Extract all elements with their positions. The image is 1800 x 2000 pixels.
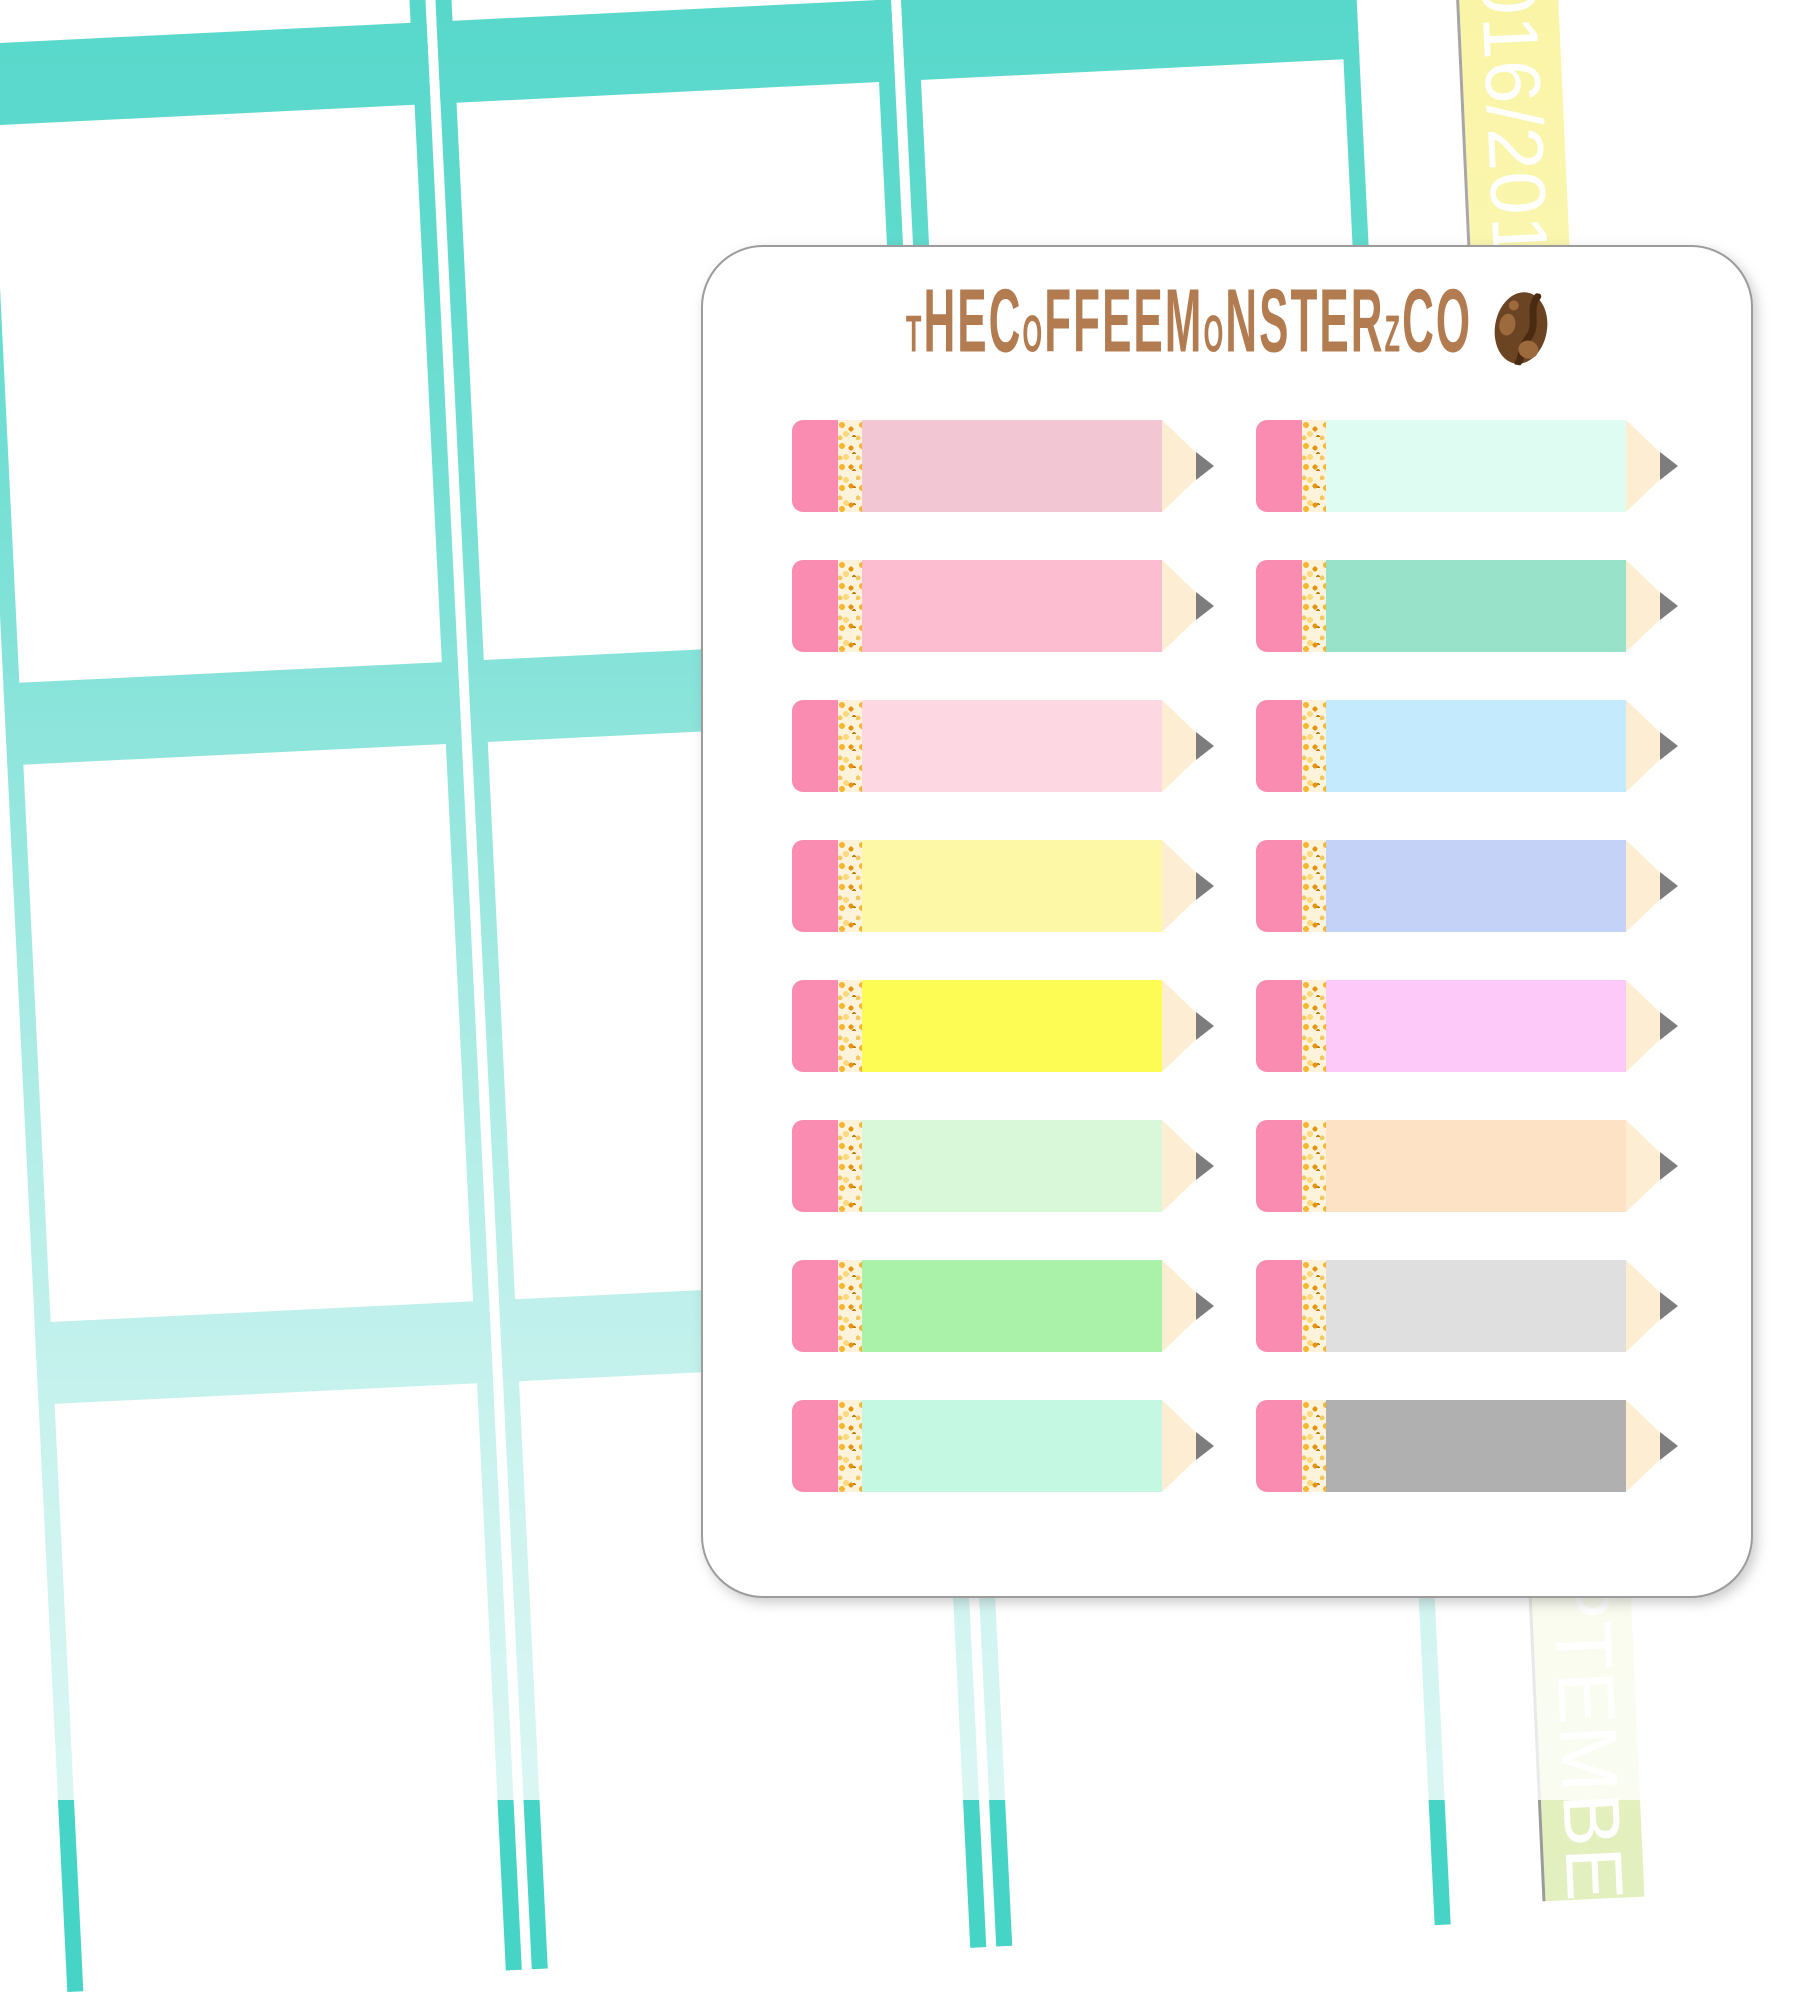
pencil-body: [862, 1120, 1162, 1212]
orchid-pencil: [1256, 980, 1686, 1072]
pencil-glitter-ferrule: [1302, 560, 1326, 652]
pencil-glitter-ferrule: [838, 560, 862, 652]
planner-week-header-band: [437, 0, 895, 103]
pencil-body: [1326, 1120, 1626, 1212]
periwinkle-pencil: [1256, 840, 1686, 932]
pencil-eraser: [1256, 700, 1302, 792]
pencil-glitter-ferrule: [838, 980, 862, 1072]
pencil-graphite-point: [1660, 592, 1678, 620]
light-gray-pencil: [1256, 1260, 1686, 1352]
pencil-graphite-point: [1196, 872, 1214, 900]
pencil-graphite-point: [1196, 452, 1214, 480]
pencil-eraser: [1256, 420, 1302, 512]
pencil-graphite-point: [1196, 1292, 1214, 1320]
brand-logo: THECOFFEEMONSTERZCO: [703, 291, 1751, 365]
planner-week-header-band: [901, 0, 1359, 81]
light-pink-pencil: [792, 700, 1222, 792]
light-green-pencil: [792, 1260, 1222, 1352]
planner-column: [0, 0, 522, 1992]
pencil-body: [862, 420, 1162, 512]
pencil-glitter-ferrule: [1302, 420, 1326, 512]
pencil-graphite-point: [1660, 1152, 1678, 1180]
pencil-glitter-ferrule: [1302, 700, 1326, 792]
pencil-eraser: [792, 700, 838, 792]
pencil-glitter-ferrule: [838, 840, 862, 932]
pale-green-pencil: [792, 1120, 1222, 1212]
pencil-glitter-ferrule: [838, 700, 862, 792]
pencil-graphite-point: [1660, 1292, 1678, 1320]
planner-week-header-band: [35, 1301, 493, 1405]
pencil-eraser: [792, 1400, 838, 1492]
pencil-glitter-ferrule: [1302, 1400, 1326, 1492]
pencil-body: [862, 1400, 1162, 1492]
pencil-graphite-point: [1660, 732, 1678, 760]
yellow-pencil: [792, 980, 1222, 1072]
pencil-body: [1326, 840, 1626, 932]
pencil-eraser: [792, 1120, 838, 1212]
sticker-shop-product-image: { "brand": { "name": "tHECoFFEEMoNSTERzC…: [0, 0, 1800, 1800]
pencil-glitter-ferrule: [1302, 1260, 1326, 1352]
pencil-graphite-point: [1196, 1012, 1214, 1040]
pencil-glitter-ferrule: [838, 1400, 862, 1492]
pencil-body: [1326, 1260, 1626, 1352]
pencil-body: [862, 840, 1162, 932]
pencil-body: [1326, 980, 1626, 1072]
pencil-eraser: [1256, 560, 1302, 652]
seafoam-pencil: [1256, 560, 1686, 652]
pencil-glitter-ferrule: [1302, 840, 1326, 932]
pencil-glitter-ferrule: [838, 1260, 862, 1352]
planner-week-header-band: [0, 22, 431, 126]
pencil-body: [1326, 420, 1626, 512]
pencil-eraser: [1256, 1400, 1302, 1492]
pencil-graphite-point: [1660, 872, 1678, 900]
pencil-graphite-point: [1660, 1012, 1678, 1040]
pencil-graphite-point: [1196, 592, 1214, 620]
pencil-eraser: [1256, 980, 1302, 1072]
pencil-glitter-ferrule: [1302, 1120, 1326, 1212]
pale-yellow-pencil: [792, 840, 1222, 932]
pencil-eraser: [792, 560, 838, 652]
pencil-body: [862, 700, 1162, 792]
pencil-glitter-ferrule: [838, 1120, 862, 1212]
pencil-eraser: [1256, 1120, 1302, 1212]
pencil-eraser: [792, 1260, 838, 1352]
mint-pencil: [792, 1400, 1222, 1492]
pencil-eraser: [1256, 840, 1302, 932]
pencil-graphite-point: [1196, 732, 1214, 760]
gray-pencil: [1256, 1400, 1686, 1492]
pale-mint-pencil: [1256, 420, 1686, 512]
pencil-body: [1326, 700, 1626, 792]
pencil-graphite-point: [1196, 1432, 1214, 1460]
pencil-body: [862, 560, 1162, 652]
light-blue-pencil: [1256, 700, 1686, 792]
pencil-graphite-point: [1660, 452, 1678, 480]
planner-week-header-band: [3, 661, 461, 765]
pencil-graphite-point: [1196, 1152, 1214, 1180]
dusty-pink-pencil: [792, 420, 1222, 512]
pencil-body: [1326, 1400, 1626, 1492]
peach-pencil: [1256, 1120, 1686, 1212]
pencil-glitter-ferrule: [1302, 980, 1326, 1072]
pencil-eraser: [792, 420, 838, 512]
pencil-body: [862, 980, 1162, 1072]
pencil-glitter-ferrule: [838, 420, 862, 512]
sticker-sheet: THECOFFEEMONSTERZCO: [701, 245, 1753, 1598]
pencil-eraser: [1256, 1260, 1302, 1352]
coffee-bean-icon: [1488, 287, 1554, 369]
pencil-sticker-column-left: [792, 420, 1222, 1492]
pencil-eraser: [792, 980, 838, 1072]
pencil-sticker-column-right: [1256, 420, 1686, 1492]
brand-name: THECOFFEEMONSTERZCO: [906, 272, 1472, 375]
pink-pencil: [792, 560, 1222, 652]
pencil-body: [1326, 560, 1626, 652]
pencil-body: [862, 1260, 1162, 1352]
pencil-eraser: [792, 840, 838, 932]
pencil-graphite-point: [1660, 1432, 1678, 1460]
